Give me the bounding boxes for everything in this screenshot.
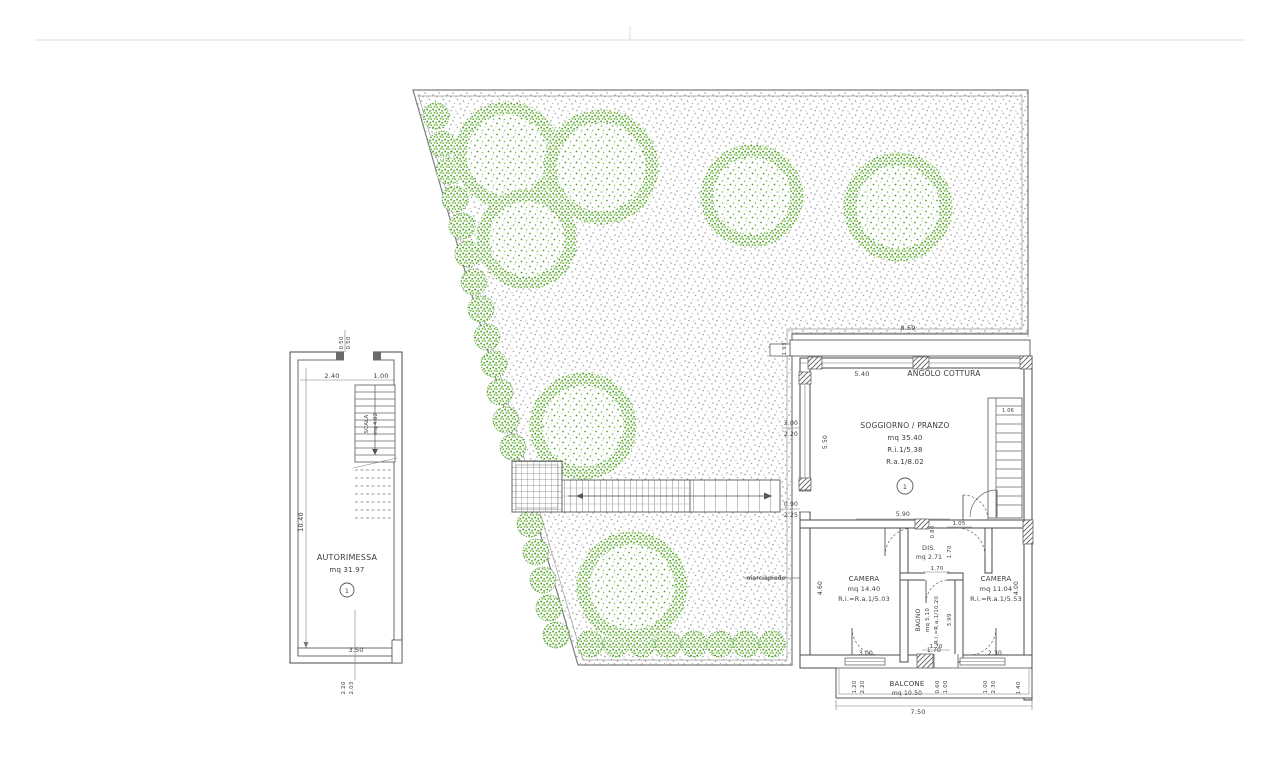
dim-text: 0.60 [935,680,941,693]
living-label: SOGGIORNO / PRANZO [860,421,949,430]
bagno-ratio: R.i.=R.a.1/10.20 [934,596,940,644]
garage-room-area: mq 31.97 [329,566,364,574]
dim-text: 3.00 [859,650,873,657]
balcone-area: mq 10.50 [892,690,922,697]
dim-text: 5.40 [854,370,869,378]
garage-room-label: AUTORIMESSA [317,553,378,562]
dim-text: 5.90 [896,511,910,518]
dim-text: 3.00 [784,420,798,427]
tree [700,144,804,248]
camera-left-room: CAMERA mq 14.40 R.i.=R.a.1/5.03 4.60 [817,575,890,603]
tree [576,531,688,643]
dim-text: 2.30 [991,680,997,693]
dis-label: DIS. [922,544,936,552]
living-room: SOGGIORNO / PRANZO mq 35.40 R.i.1/5.38 R… [860,421,949,494]
dim-text: 5.50 [822,435,829,449]
dim-text: 1.70 [927,647,941,654]
garage-stair-area: mq 4.02 [373,413,379,435]
dim-text: 1.70 [930,566,943,572]
dim-text: 2.20 [784,431,798,438]
camera-right-label: CAMERA [981,575,1012,583]
sheet-marks [35,26,1245,40]
living-unit-number: 1 [903,483,907,491]
dim-text: 3.50 [348,646,363,654]
garage-building: SCALA mq 4.02 AUTORIMESSA mq 31.97 1 2.4… [290,330,402,695]
dim-text: 2.25 [784,512,798,519]
dim-text: 2.30 [988,650,1002,657]
dim-text: 4.60 [817,581,824,595]
dim-text: 2.20 [860,680,866,693]
dim-text: 0.90 [784,501,798,508]
camera-right-area: mq 11.04 [980,585,1013,593]
dim-text: 0.80 [930,525,936,538]
tree [476,188,578,290]
dim-text: 3.99 [947,613,953,626]
living-ri: R.i.1/5.38 [887,446,922,454]
dim-text: 1.00 [983,680,989,693]
bagno-room: BAGNO mq 5.10 R.i.=R.a.1/10.20 3.99 1.70 [915,596,953,650]
dim-text: 1.40 [1016,681,1022,694]
tree [843,152,953,262]
dim-text: 1.70 [947,545,953,558]
camera-left-area: mq 14.40 [848,585,881,593]
dis-area: mq 2.71 [916,554,942,561]
dim-text: 0.50 [339,336,345,349]
dim-text: 1.93 [782,342,788,355]
dim-text: 0.50 [346,336,352,349]
dim-text: 1.00 [373,372,388,380]
living-ra: R.a.1/8.02 [886,458,924,466]
dim-text: 2.20 [341,681,347,694]
kitchen-label: ANGOLO COTTURA [907,369,981,378]
garage-unit-number: 1 [345,588,349,595]
camera-right-room: CAMERA mq 11.04 R.i.=R.a.1/5.53 4.00 [970,575,1022,603]
dim-text: 1.20 [852,680,858,693]
dim-text: 1.06 [1002,408,1014,414]
camera-right-ratio: R.i.=R.a.1/5.53 [970,595,1022,603]
dim-text: 1.05 [952,521,965,527]
camera-left-label: CAMERA [849,575,880,583]
floor-plan-sheet: marciapiede SCALA mq 4.02 AUTORIMESSA mq… [0,0,1280,780]
dim-text: 2.40 [324,372,339,380]
dis-room: DIS. mq 2.71 1.70 1.70 [916,544,953,572]
balcone-label: BALCONE [890,680,925,688]
dim-text: 8.59 [900,324,915,332]
main-building: 8.59 1.93 5.40 ANGOLO COTTURA 3.00 2.20 … [770,324,1033,716]
sidewalk-label: marciapiede [746,575,785,582]
bagno-label: BAGNO [915,608,922,631]
camera-left-ratio: R.i.=R.a.1/5.03 [838,595,890,603]
garage-stair-label: SCALA [364,414,370,433]
floor-plan-drawing: marciapiede SCALA mq 4.02 AUTORIMESSA mq… [0,0,1280,780]
dim-text: 4.00 [1013,581,1020,595]
dim-text: 10.40 [297,512,305,532]
bagno-area: mq 5.10 [925,608,931,633]
balcone: BALCONE mq 10.50 1.20 2.20 0.60 1.00 1.0… [836,668,1032,716]
dim-text: 7.50 [910,708,925,716]
dim-text: 2.03 [349,681,355,694]
dim-text: 1.00 [943,680,949,693]
living-area: mq 35.40 [887,434,922,442]
